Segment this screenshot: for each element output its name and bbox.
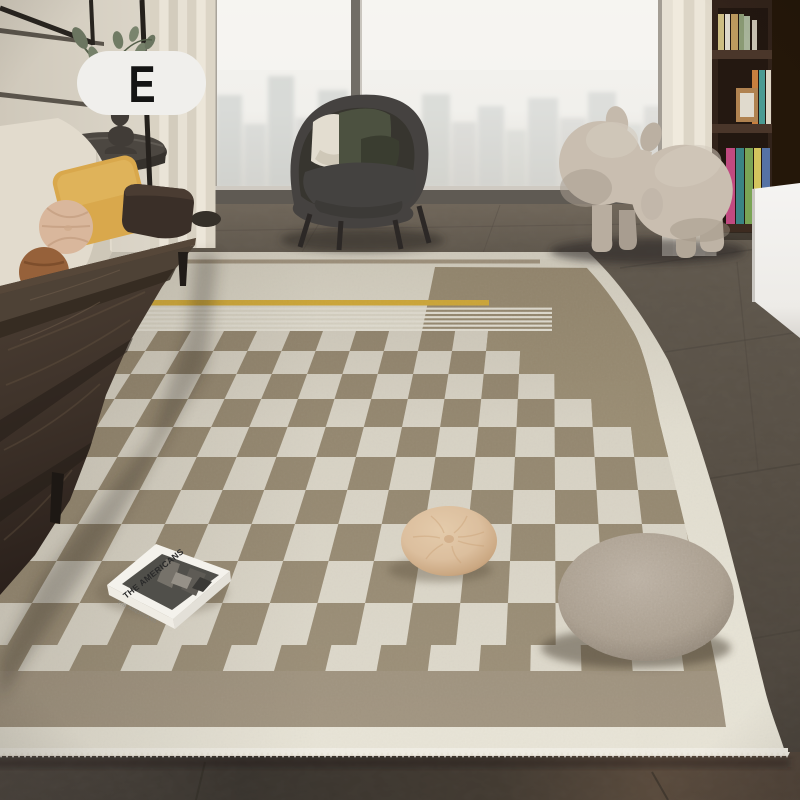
svg-text:E: E (128, 55, 155, 113)
